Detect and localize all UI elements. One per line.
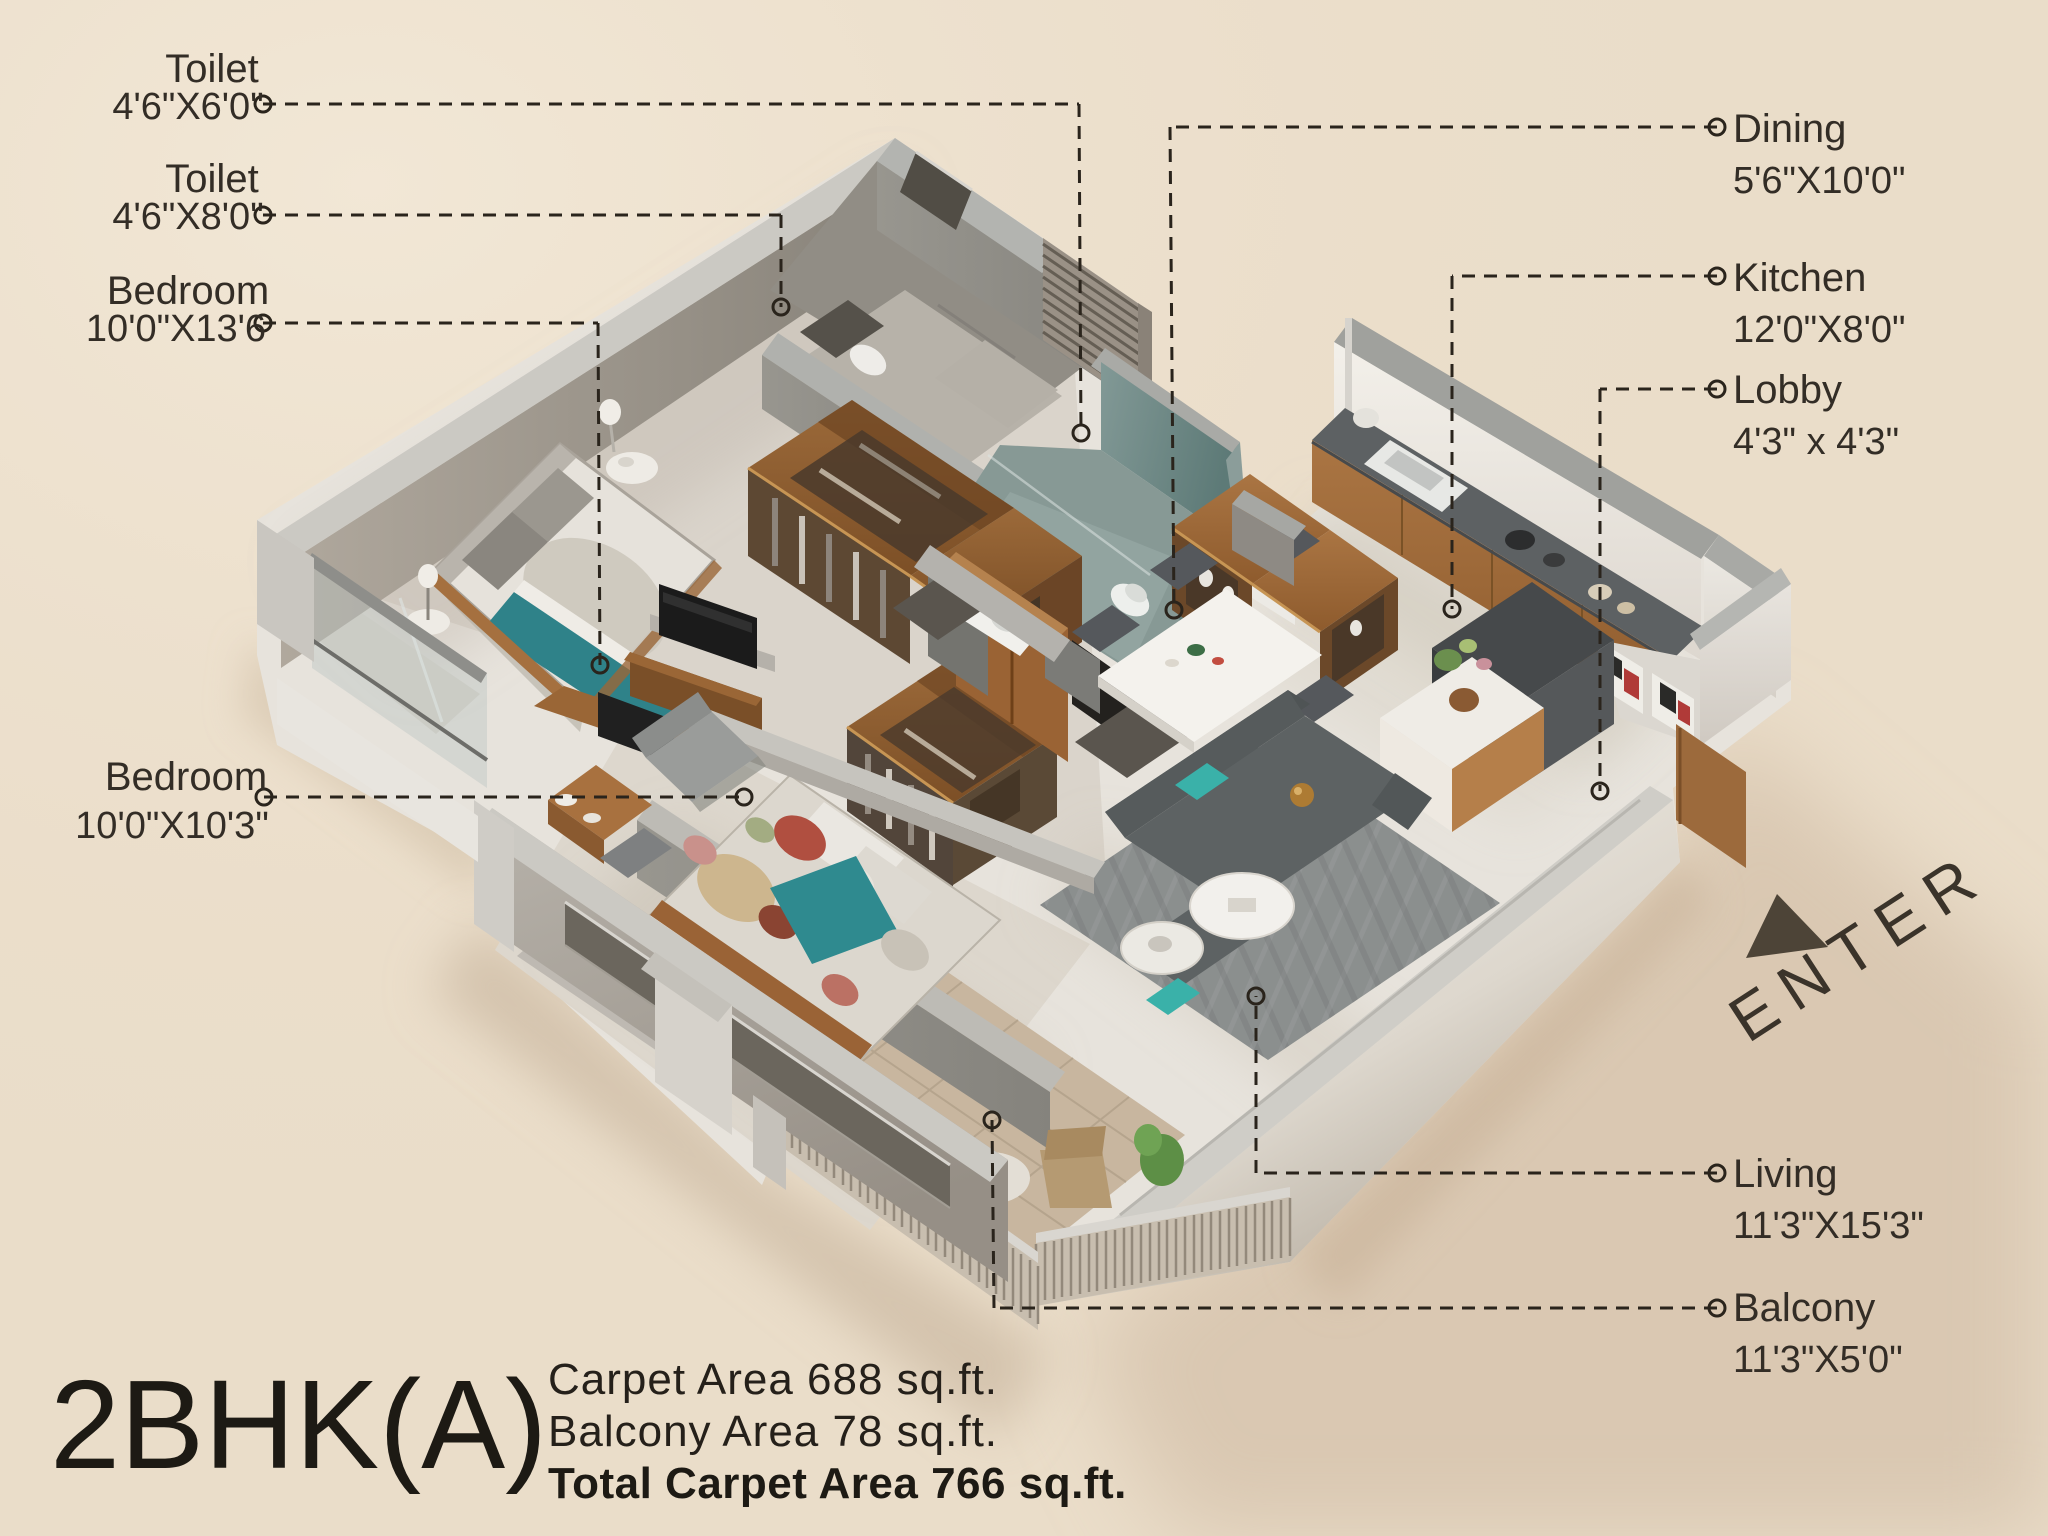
svg-text:Lobby: Lobby [1733, 368, 1842, 412]
svg-text:2BHK(A): 2BHK(A) [50, 1354, 547, 1495]
svg-text:Living: Living [1733, 1152, 1838, 1196]
svg-text:11'3"X5'0": 11'3"X5'0" [1733, 1339, 1903, 1381]
svg-text:Total Carpet Area 766 sq.ft.: Total Carpet Area 766 sq.ft. [548, 1459, 1127, 1508]
svg-text:4'6"X6'0": 4'6"X6'0" [112, 86, 263, 128]
svg-text:Toilet: Toilet [165, 47, 258, 91]
svg-text:Balcony Area 78 sq.ft.: Balcony Area 78 sq.ft. [548, 1407, 998, 1456]
svg-text:5'6"X10'0": 5'6"X10'0" [1733, 160, 1906, 202]
svg-text:Bedroom: Bedroom [107, 269, 269, 313]
svg-text:Bedroom: Bedroom [105, 755, 267, 799]
svg-text:Dining: Dining [1733, 107, 1846, 151]
svg-text:Balcony: Balcony [1733, 1286, 1875, 1330]
svg-text:Carpet Area 688 sq.ft.: Carpet Area 688 sq.ft. [548, 1355, 998, 1404]
svg-text:10'0"X13'6: 10'0"X13'6 [86, 308, 266, 350]
svg-text:11'3"X15'3": 11'3"X15'3" [1733, 1205, 1924, 1247]
svg-text:4'3" x 4'3": 4'3" x 4'3" [1733, 421, 1899, 463]
svg-text:Toilet: Toilet [165, 157, 258, 201]
svg-text:4'6"X8'0": 4'6"X8'0" [112, 196, 263, 238]
svg-text:12'0"X8'0": 12'0"X8'0" [1733, 309, 1906, 351]
svg-text:Kitchen: Kitchen [1733, 256, 1866, 300]
svg-text:10'0"X10'3": 10'0"X10'3" [75, 805, 269, 847]
